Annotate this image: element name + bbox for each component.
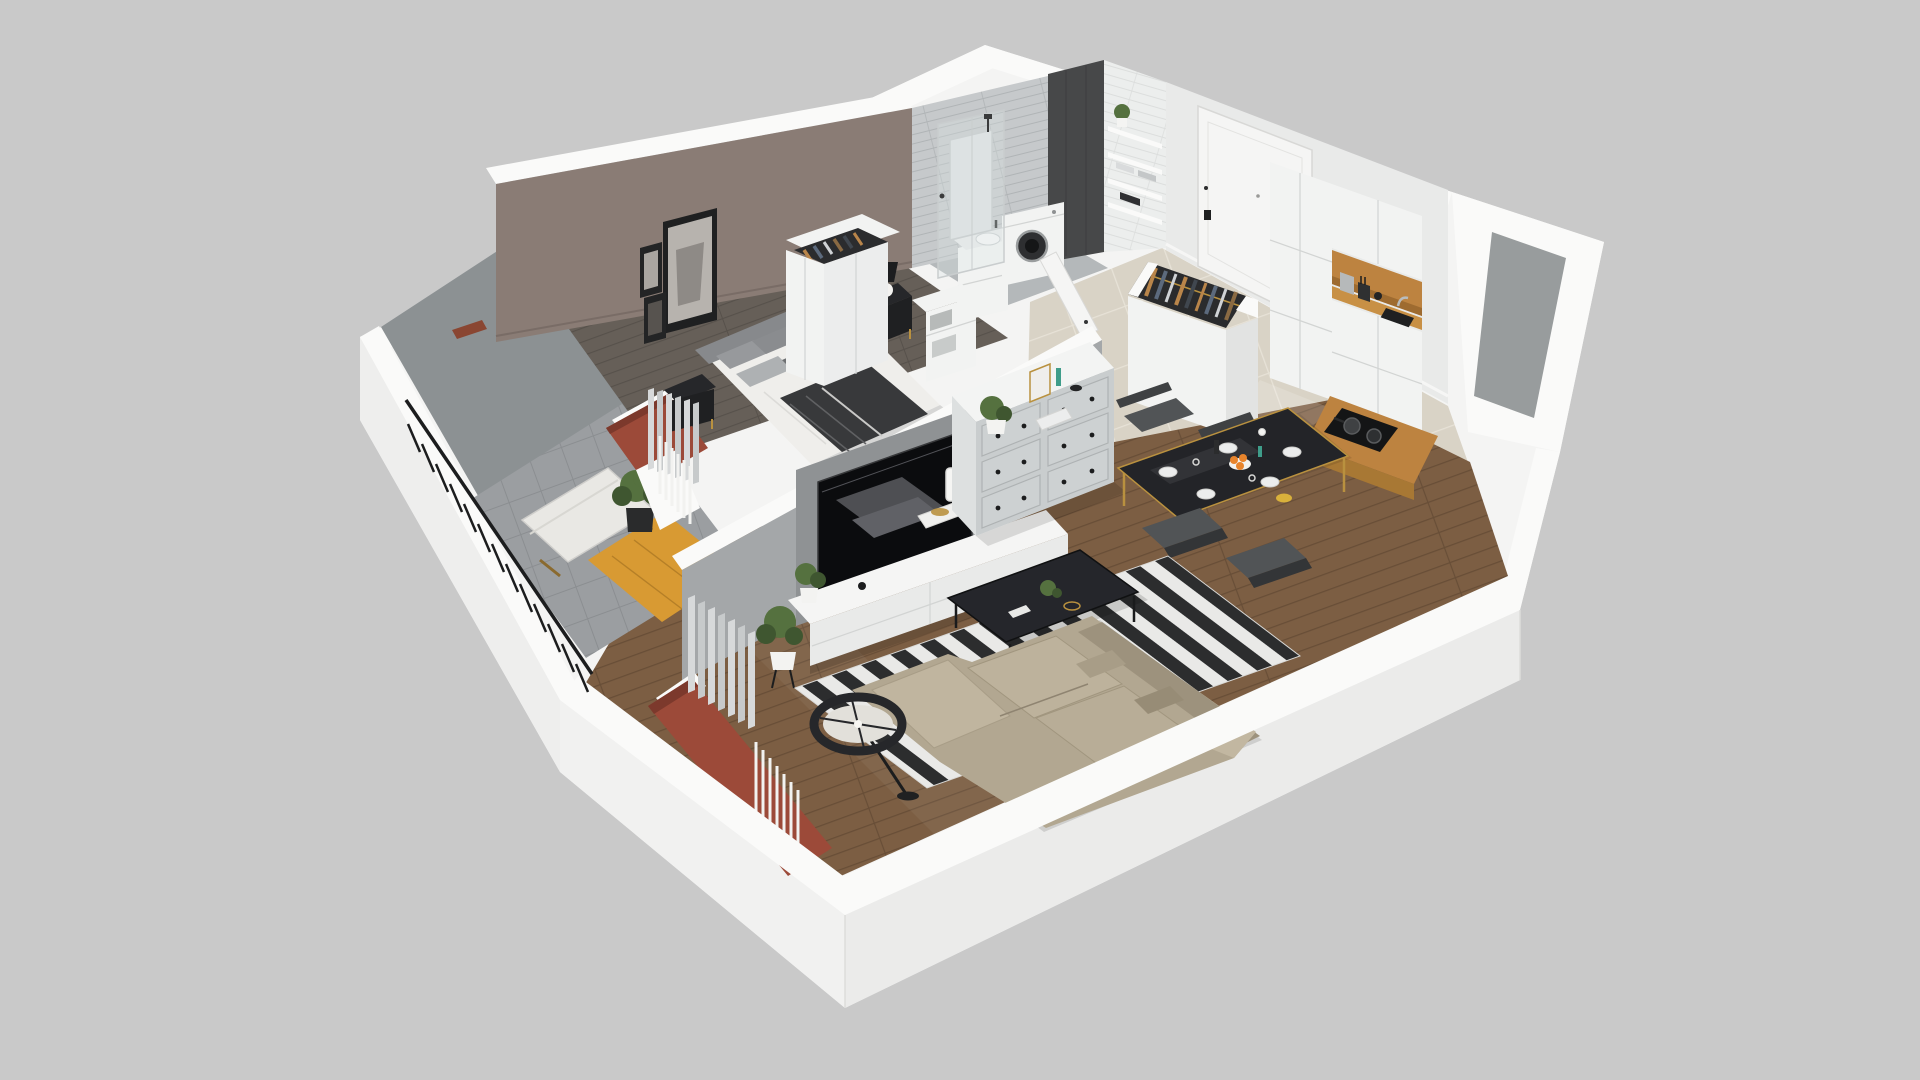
bottle — [1214, 440, 1219, 454]
bedroom-wardrobe — [786, 214, 900, 386]
walk-in-shower — [938, 110, 1004, 278]
yellow-plate — [1276, 494, 1292, 503]
teal-vase — [1056, 368, 1061, 386]
pan — [1367, 429, 1381, 443]
floorplan-svg — [0, 0, 1920, 1080]
tall-cabinets — [1270, 162, 1332, 400]
speaker — [858, 582, 866, 590]
shelf-plant — [1114, 104, 1130, 120]
black-bowl — [1070, 385, 1082, 391]
pan — [1344, 418, 1360, 434]
shower-head — [984, 114, 992, 119]
floorplan-render — [0, 0, 1920, 1080]
door-handle — [1204, 210, 1211, 220]
